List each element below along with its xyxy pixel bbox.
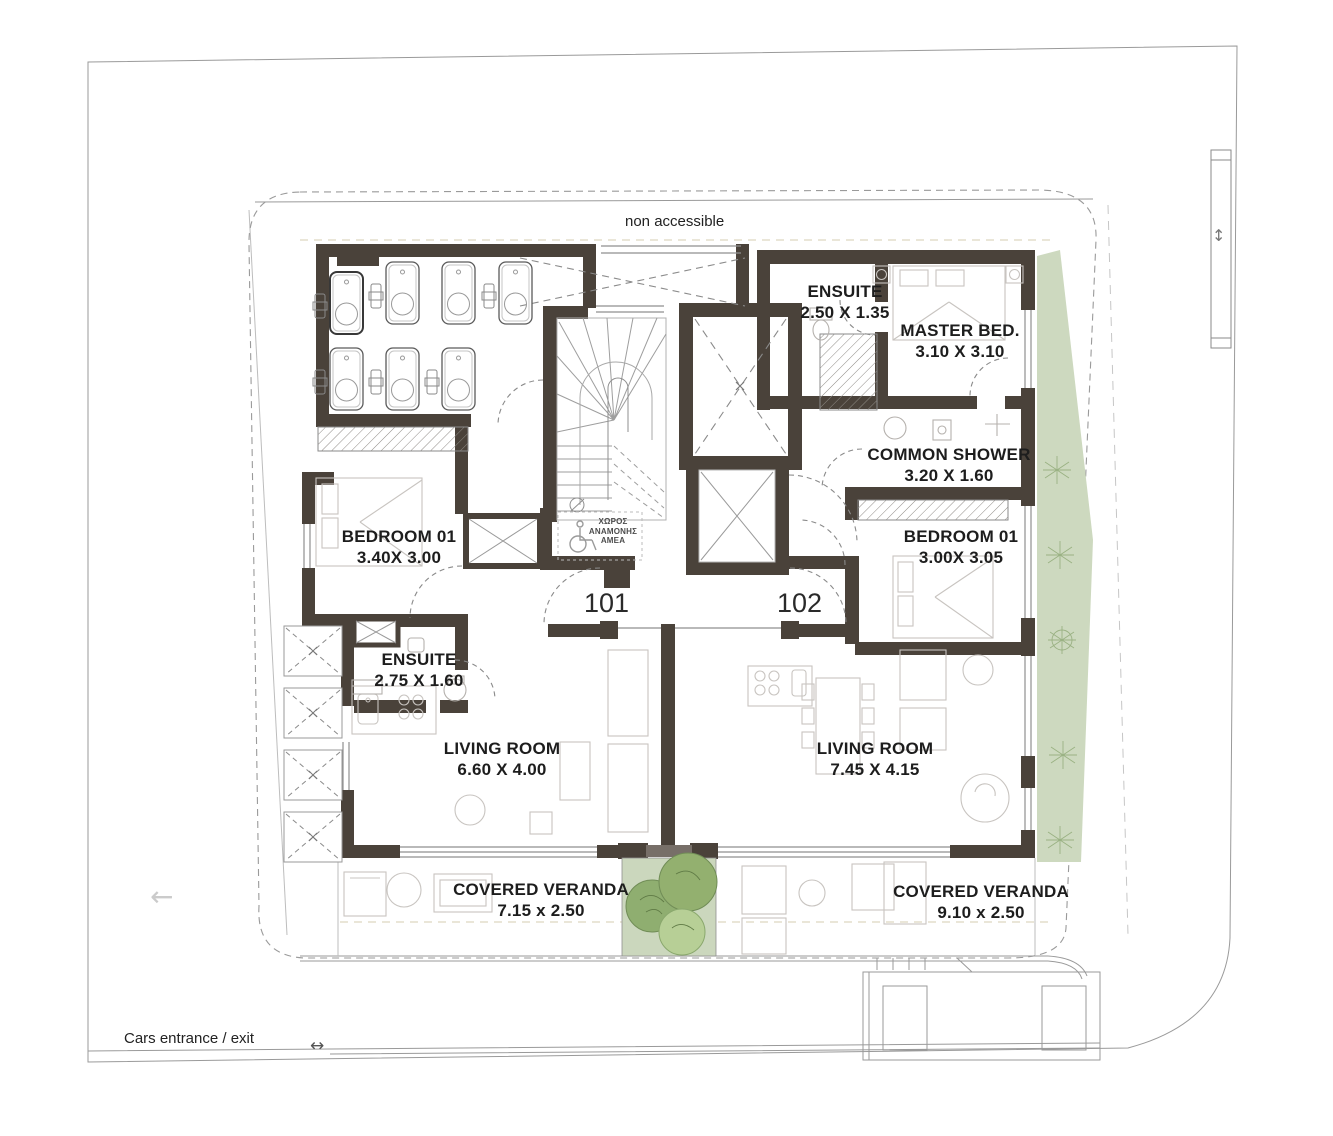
staircase <box>557 318 666 520</box>
room-dims: 3.00X 3.05 <box>904 547 1018 568</box>
waiting-line-3: ΑΜΕΑ <box>589 536 637 546</box>
label-waiting-area: ΧΩΡΟΣ ΑΝΑΜΟΝΗΣ ΑΜΕΑ <box>589 517 637 546</box>
room-label-living-right: LIVING ROOM 7.45 X 4.15 <box>817 738 933 780</box>
room-label-veranda-left: COVERED VERANDA 7.15 x 2.50 <box>453 879 629 921</box>
room-dims: 3.40X 3.00 <box>342 547 456 568</box>
room-name: BEDROOM 01 <box>904 526 1018 547</box>
room-label-ensuite-left: ENSUITE 2.75 X 1.60 <box>374 649 463 691</box>
room-dims: 3.10 X 3.10 <box>900 341 1019 362</box>
room-dims: 7.15 x 2.50 <box>453 900 629 921</box>
room-label-common-shower: COMMON SHOWER 3.20 X 1.60 <box>867 444 1030 486</box>
arrow-horizontal-icon: ↔ <box>310 1036 324 1056</box>
room-label-master-bed: MASTER BED. 3.10 X 3.10 <box>900 320 1019 362</box>
green-strip <box>1037 250 1093 862</box>
unit-number-102: 102 <box>777 588 822 619</box>
elevator-shaft <box>695 319 786 454</box>
room-dims: 2.50 X 1.35 <box>800 302 889 323</box>
room-name: COMMON SHOWER <box>867 444 1030 465</box>
room-label-living-left: LIVING ROOM 6.60 X 4.00 <box>444 738 560 780</box>
room-name: ENSUITE <box>800 281 889 302</box>
waiting-line-2: ΑΝΑΜΟΝΗΣ <box>589 527 637 537</box>
room-name: BEDROOM 01 <box>342 526 456 547</box>
room-name: COVERED VERANDA <box>453 879 629 900</box>
room-dims: 6.60 X 4.00 <box>444 759 560 780</box>
bottom-structure <box>863 972 1100 1060</box>
room-label-veranda-right: COVERED VERANDA 9.10 x 2.50 <box>893 881 1069 923</box>
duct-shaft <box>699 470 775 562</box>
label-non-accessible: non accessible <box>625 213 724 230</box>
room-name: MASTER BED. <box>900 320 1019 341</box>
label-cars-entrance: Cars entrance / exit <box>124 1030 254 1047</box>
room-name: LIVING ROOM <box>444 738 560 759</box>
room-label-ensuite-top: ENSUITE 2.50 X 1.35 <box>800 281 889 323</box>
room-dims: 2.75 X 1.60 <box>374 670 463 691</box>
plan-linework: ← ↔ ↕ <box>0 0 1333 1136</box>
room-label-bedroom-right: BEDROOM 01 3.00X 3.05 <box>904 526 1018 568</box>
waiting-line-1: ΧΩΡΟΣ <box>589 517 637 527</box>
room-name: ENSUITE <box>374 649 463 670</box>
unit-number-101: 101 <box>584 588 629 619</box>
room-dims: 7.45 X 4.15 <box>817 759 933 780</box>
room-name: COVERED VERANDA <box>893 881 1069 902</box>
room-dims: 3.20 X 1.60 <box>867 465 1030 486</box>
arrow-vertical-icon: ↕ <box>1212 226 1225 245</box>
room-label-bedroom-left: BEDROOM 01 3.40X 3.00 <box>342 526 456 568</box>
planter-boxes <box>284 626 342 862</box>
boiler-units <box>313 262 532 410</box>
floor-plan-canvas: ← ↔ ↕ non accessible ENSUITE 2.50 X 1.35… <box>0 0 1333 1136</box>
room-dims: 9.10 x 2.50 <box>893 902 1069 923</box>
room-name: LIVING ROOM <box>817 738 933 759</box>
planter-trees <box>622 853 717 956</box>
arrow-left-icon: ← <box>150 880 173 913</box>
void-cross <box>520 258 745 306</box>
